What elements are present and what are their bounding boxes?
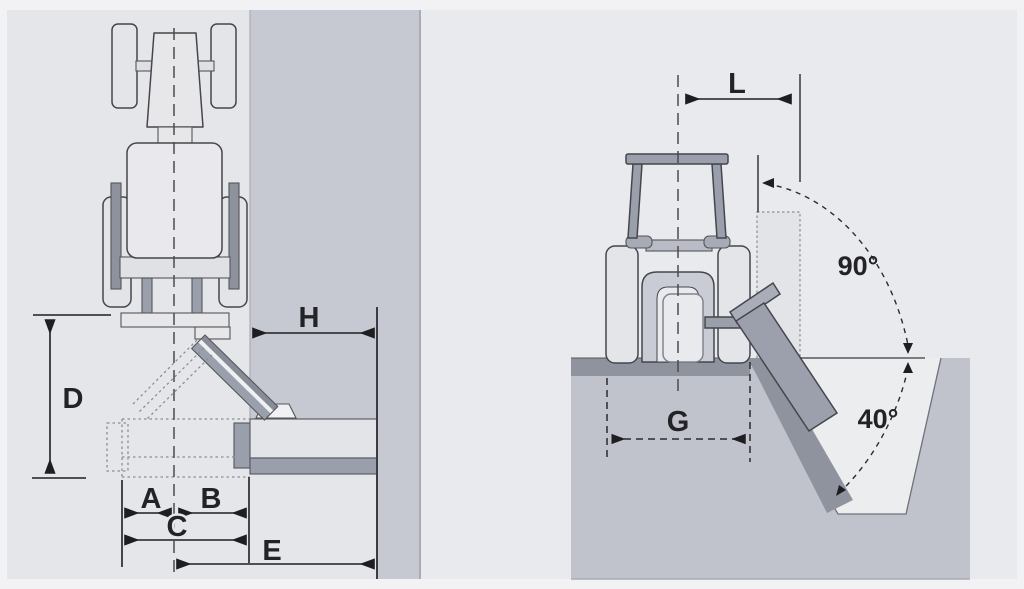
deck-roller-band: [250, 458, 377, 474]
rear-frame: [120, 257, 230, 278]
deck-body: [250, 419, 377, 458]
dim-label-H: H: [299, 302, 320, 334]
dim-label-L: L: [728, 68, 746, 100]
lift-arm-right: [192, 278, 202, 316]
diagram-canvas: A B C D E H L G 90° 40°: [0, 0, 1024, 589]
dim-label-E: E: [262, 535, 281, 567]
rops-top-bar: [626, 154, 728, 164]
fender-deck-bar: [646, 240, 712, 251]
angle-label-90: 90°: [838, 251, 879, 281]
drawbar-frame: [663, 294, 703, 362]
front-wheel-left: [112, 24, 137, 108]
lift-arm-left: [142, 278, 152, 316]
hitch-plate: [121, 313, 229, 327]
angle-label-40: 40°: [858, 404, 899, 434]
dim-label-G: G: [667, 406, 690, 438]
hitch-bracket: [195, 327, 230, 339]
dim-label-D: D: [63, 383, 84, 415]
dim-label-C: C: [167, 511, 188, 543]
rear-wheel-left: [606, 246, 638, 363]
dim-label-A: A: [141, 483, 162, 515]
dim-label-B: B: [201, 483, 222, 515]
front-wheel-right: [211, 24, 236, 108]
hood: [147, 33, 203, 127]
diagram-page: A B C D E H L G 90° 40°: [0, 0, 1024, 589]
deck-connector: [234, 423, 250, 468]
